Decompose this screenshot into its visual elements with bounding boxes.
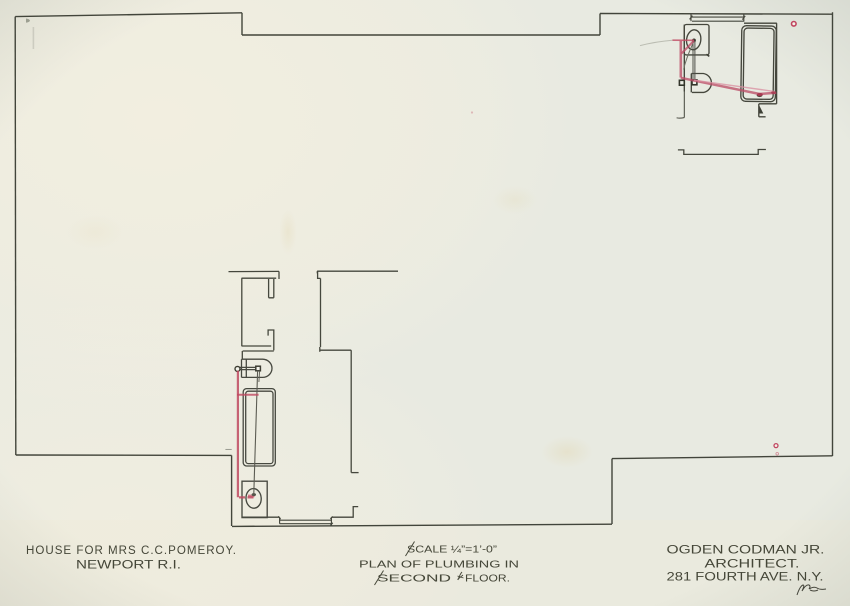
svg-text:281 FOURTH AVE. N.Y.: 281 FOURTH AVE. N.Y. xyxy=(667,572,824,584)
svg-text:FLOOR.: FLOOR. xyxy=(465,573,510,585)
svg-text:OGDEN CODMAN JR.: OGDEN CODMAN JR. xyxy=(667,545,825,557)
svg-text:NEWPORT R.I.: NEWPORT R.I. xyxy=(76,560,181,572)
svg-text:SECOND: SECOND xyxy=(377,573,452,585)
svg-text:ARCHITECT.: ARCHITECT. xyxy=(705,559,800,571)
svg-text:SCALE ¼”=1’-0”: SCALE ¼”=1’-0” xyxy=(407,544,497,556)
svg-text:HOUSE FOR M​RS C.C.POMEROY.: HOUSE FOR M​RS C.C.POMEROY. xyxy=(26,545,237,557)
svg-text:PLAN OF PLUMBING IN: PLAN OF PLUMBING IN xyxy=(359,559,519,571)
